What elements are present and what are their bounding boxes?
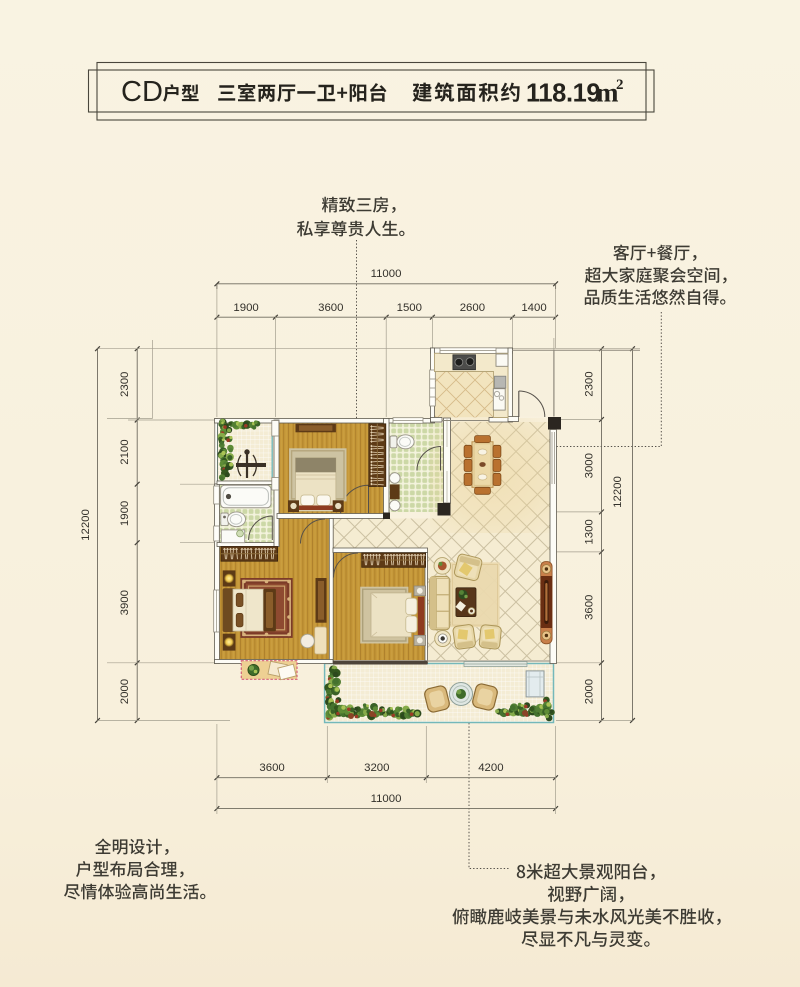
svg-text:1300: 1300 bbox=[584, 519, 596, 544]
svg-text:2300: 2300 bbox=[119, 372, 131, 397]
svg-text:3600: 3600 bbox=[318, 302, 343, 314]
svg-text:1900: 1900 bbox=[119, 501, 131, 526]
svg-text:2100: 2100 bbox=[119, 439, 131, 464]
svg-text:2300: 2300 bbox=[584, 371, 596, 396]
svg-text:2000: 2000 bbox=[584, 679, 596, 704]
svg-text:4200: 4200 bbox=[478, 762, 503, 774]
svg-text:12200: 12200 bbox=[612, 476, 624, 508]
svg-text:1900: 1900 bbox=[233, 302, 258, 314]
svg-text:CD: CD bbox=[121, 76, 163, 108]
svg-text:118.19: 118.19 bbox=[526, 80, 600, 108]
svg-text:3200: 3200 bbox=[364, 762, 389, 774]
svg-text:2600: 2600 bbox=[460, 302, 485, 314]
svg-text:3900: 3900 bbox=[119, 590, 131, 615]
svg-text:2: 2 bbox=[616, 77, 624, 93]
svg-text:12200: 12200 bbox=[80, 509, 92, 541]
svg-text:2000: 2000 bbox=[119, 679, 131, 704]
svg-text:1400: 1400 bbox=[521, 302, 546, 314]
svg-text:3000: 3000 bbox=[584, 453, 596, 478]
svg-text:11000: 11000 bbox=[371, 268, 402, 280]
svg-text:11000: 11000 bbox=[371, 793, 402, 805]
svg-text:3600: 3600 bbox=[584, 595, 596, 620]
svg-text:3600: 3600 bbox=[259, 762, 284, 774]
svg-text:1500: 1500 bbox=[397, 302, 422, 314]
